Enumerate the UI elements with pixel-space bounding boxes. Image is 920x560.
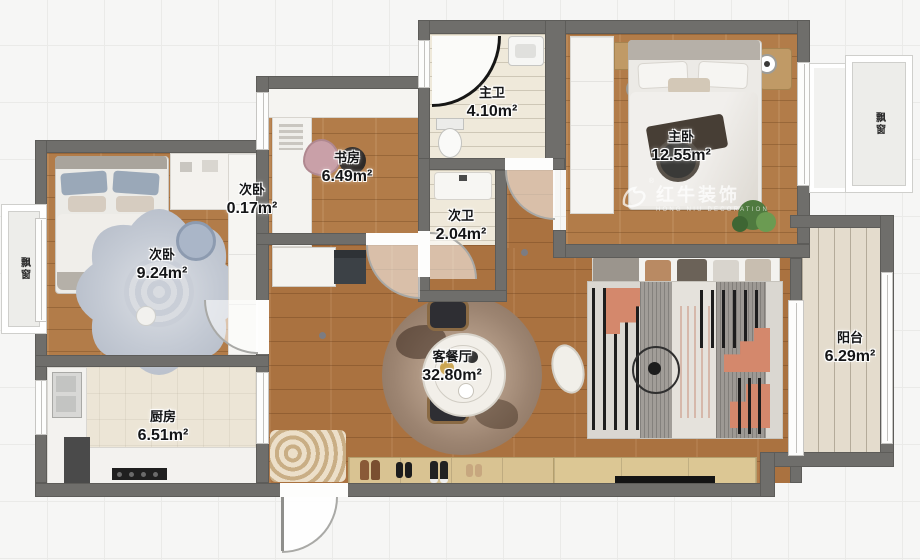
- shoes: [405, 462, 412, 478]
- room-name: 主卫: [467, 82, 518, 101]
- vanity-desk: [170, 153, 230, 210]
- label-living-dining: 客餐厅 32.80m²: [422, 346, 482, 385]
- boots: [371, 460, 380, 480]
- kitchen-sliding-door: [256, 372, 269, 444]
- plant: [732, 216, 748, 232]
- label-closet: 次卧 0.17m²: [227, 179, 278, 218]
- window-kitchen: [35, 380, 47, 435]
- wall-balcony-top: [790, 215, 894, 228]
- pillow: [116, 196, 154, 212]
- sneakers: [430, 461, 438, 483]
- room-area: 6.49m²: [322, 168, 373, 186]
- wall-bottom: [35, 483, 775, 497]
- burner: [141, 472, 146, 477]
- wall-masterbed-bottom: [553, 244, 810, 258]
- bathroom-sink: [508, 36, 544, 66]
- wall-corner-connector: [760, 452, 775, 497]
- room-area: 0.17m²: [227, 200, 278, 218]
- sink-basin: [56, 376, 76, 392]
- window-study: [256, 92, 269, 150]
- watermark: ® 红牛装饰 HONG NIU DECORATION: [620, 182, 769, 217]
- burner: [117, 472, 122, 477]
- bay-window-right: 飘窗: [846, 56, 912, 192]
- label-study: 书房 6.49m²: [322, 147, 373, 186]
- wall-kitchen-top: [35, 355, 269, 367]
- rug-circle-dot: [648, 362, 661, 375]
- wall-balcony-bottom: [760, 452, 894, 467]
- hall-cabinet: [272, 247, 336, 287]
- pillow: [60, 170, 107, 195]
- balcony-sliding-door: [788, 300, 804, 456]
- fridge: [64, 437, 90, 483]
- shoes: [396, 462, 403, 478]
- bay-window-right-label: 飘窗: [872, 112, 887, 136]
- door-arc-entry: [282, 497, 338, 553]
- room-area: 32.80m²: [422, 367, 482, 385]
- window-balcony: [881, 272, 893, 444]
- label-master-bedroom: 主卧 12.55m²: [651, 126, 711, 165]
- window-masterbath: [418, 40, 430, 88]
- label-second-bath: 次卫 2.04m²: [436, 205, 487, 244]
- study-top-cabinet: [269, 89, 418, 118]
- downlight: [319, 332, 326, 339]
- room-area: 2.04m²: [436, 226, 487, 244]
- kitchen-sink: [52, 372, 82, 418]
- registered-mark: ®: [649, 178, 654, 185]
- tv: [615, 476, 715, 483]
- shower-tray: [434, 172, 492, 200]
- room-area: 12.55m²: [651, 147, 711, 165]
- wall-secondbath-bottom: [418, 290, 507, 302]
- bay-window-left-label: 飘窗: [17, 257, 32, 281]
- toilet: [438, 128, 462, 158]
- pillow: [68, 196, 106, 212]
- watermark-subtitle: HONG NIU DECORATION: [656, 207, 769, 213]
- stove: [112, 468, 167, 480]
- watermark-brand: 红牛装饰: [656, 186, 769, 204]
- study-desk: [272, 117, 312, 247]
- sofa-cushion: [713, 260, 739, 284]
- door-opening-study: [366, 233, 418, 245]
- room-name: 厨房: [138, 406, 189, 425]
- dining-chair: [427, 299, 469, 331]
- window-bedroom2: [35, 218, 47, 322]
- room-area: 6.29m²: [825, 348, 876, 366]
- room-area: 4.10m²: [467, 103, 518, 121]
- bull-logo-icon: ®: [620, 182, 650, 217]
- slippers: [475, 464, 482, 477]
- master-wardrobe: [570, 36, 614, 214]
- room-name: 主卧: [651, 126, 711, 145]
- label-balcony: 阳台 6.29m²: [825, 327, 876, 366]
- lamp-center: [764, 61, 770, 67]
- sofa-cushion: [645, 260, 671, 284]
- door-leaf-entry: [281, 497, 284, 551]
- room-area: 6.51m²: [138, 427, 189, 445]
- flower-rug: [74, 214, 244, 370]
- label-kitchen: 厨房 6.51m²: [138, 406, 189, 445]
- sink-basin: [515, 44, 536, 58]
- pillow: [112, 170, 159, 195]
- door-opening-master-suite: [505, 158, 553, 170]
- window-masterbed: [797, 62, 810, 186]
- room-name: 阳台: [825, 327, 876, 346]
- plate: [458, 383, 474, 399]
- wall-study-top: [256, 76, 430, 89]
- wall-secondbath-right: [495, 170, 507, 302]
- boots: [360, 460, 369, 480]
- floor-plan-canvas: 飘窗 飘窗 主卫 4.10m² 主卧 12.55m² 书房 6.49m² 次卧 …: [0, 0, 920, 560]
- wall-masterbed-left-stub: [553, 230, 566, 258]
- downlight: [521, 249, 528, 256]
- desk-item: [202, 160, 218, 172]
- sink-basin: [56, 396, 76, 412]
- burner: [153, 472, 158, 477]
- room-name: 次卧: [137, 244, 188, 263]
- room-name: 书房: [322, 147, 373, 166]
- room-name: 次卧: [227, 179, 278, 198]
- rug-stripes: [700, 290, 762, 348]
- master-headboard: [628, 40, 760, 60]
- door-opening-entry: [280, 483, 348, 497]
- book-stack: [279, 124, 303, 150]
- wall-masterbath-right: [545, 20, 566, 170]
- slippers: [466, 464, 473, 477]
- tea-tray: [136, 306, 156, 326]
- shower-head: [459, 175, 467, 181]
- room-name: 客餐厅: [422, 346, 482, 365]
- wall-bedroom2-top: [35, 140, 269, 153]
- kitchen-counter-bottom: [85, 447, 258, 485]
- hall-appliance: [334, 250, 366, 284]
- label-master-bath: 主卫 4.10m²: [467, 82, 518, 121]
- living-rug: [588, 282, 782, 438]
- entry-rug: [270, 430, 346, 482]
- rug-stripes: [738, 378, 764, 434]
- label-second-bedroom: 次卧 9.24m²: [137, 244, 188, 283]
- room-area: 9.24m²: [137, 265, 188, 283]
- wall-top: [418, 20, 810, 34]
- wall-study-bottom: [256, 233, 368, 245]
- burner: [129, 472, 134, 477]
- second-bedroom-headboard: [55, 156, 167, 169]
- sneakers: [440, 461, 448, 483]
- room-name: 次卫: [436, 205, 487, 224]
- desk-item: [180, 162, 192, 172]
